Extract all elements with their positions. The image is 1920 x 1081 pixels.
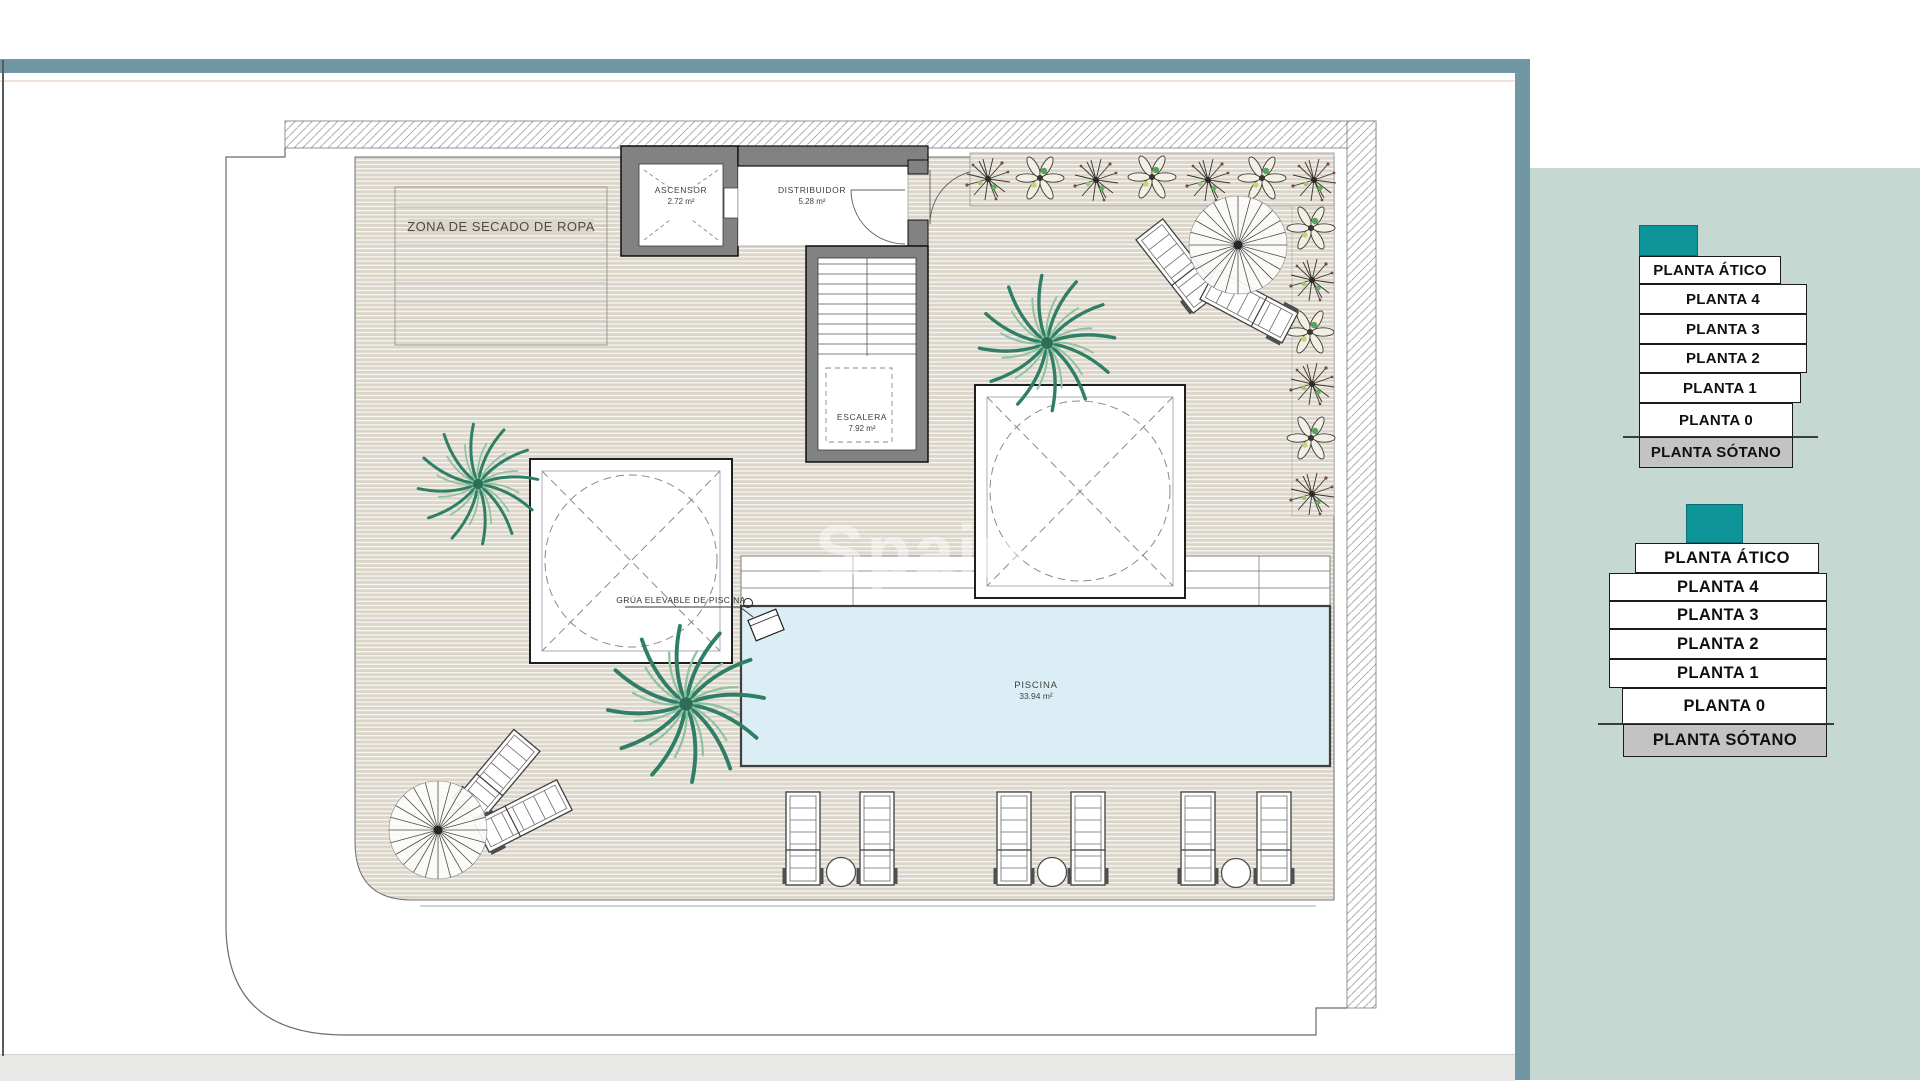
skylight-left	[530, 459, 732, 663]
floor-button-label: PLANTA SÓTANO	[1653, 731, 1797, 750]
ascensor-label: ASCENSOR	[655, 185, 708, 195]
garden-bed-top	[965, 153, 1336, 206]
floor-button-label: PLANTA 3	[1677, 606, 1759, 625]
floor-button-planta-atico[interactable]: PLANTA ÁTICO	[1639, 256, 1781, 284]
stair-room: ESCALERA 7.92 m²	[806, 246, 928, 462]
piscina-label: PISCINA	[1014, 680, 1058, 691]
floor-button-planta-sotano[interactable]: PLANTA SÓTANO	[1639, 437, 1793, 468]
floor-button-label: PLANTA 4	[1686, 291, 1760, 308]
floor-button-label: PLANTA ÁTICO	[1653, 262, 1767, 279]
floor-button-planta-sotano[interactable]: PLANTA SÓTANO	[1623, 724, 1827, 757]
floor-button-planta-3[interactable]: PLANTA 3	[1639, 314, 1807, 344]
distribuidor-area: 5.28 m²	[798, 197, 825, 206]
floor-button-label: PLANTA ÁTICO	[1664, 549, 1790, 568]
pool: PISCINA 33.94 m²	[741, 606, 1330, 766]
floor-button-planta-2[interactable]: PLANTA 2	[1639, 344, 1807, 373]
floor-button-label: PLANTA 0	[1683, 697, 1765, 716]
escalera-label: ESCALERA	[837, 412, 887, 422]
selected-floor-indicator	[1686, 504, 1743, 543]
floor-button-label: PLANTA 2	[1686, 350, 1760, 367]
distribuidor-label: DISTRIBUIDOR	[778, 185, 846, 195]
floor-button-label: PLANTA 0	[1679, 412, 1753, 429]
floor-button-planta-1[interactable]: PLANTA 1	[1639, 373, 1801, 403]
zona-secado-label: ZONA DE SECADO DE ROPA	[407, 219, 595, 234]
floor-button-planta-3[interactable]: PLANTA 3	[1609, 601, 1827, 629]
floor-button-planta-0[interactable]: PLANTA 0	[1622, 688, 1827, 724]
floor-button-planta-2[interactable]: PLANTA 2	[1609, 629, 1827, 659]
floor-button-label: PLANTA 3	[1686, 321, 1760, 338]
selected-floor-indicator	[1639, 225, 1698, 256]
floor-button-planta-1[interactable]: PLANTA 1	[1609, 659, 1827, 688]
floor-button-label: PLANTA 2	[1677, 635, 1759, 654]
floor-button-planta-4[interactable]: PLANTA 4	[1639, 284, 1807, 314]
floor-button-planta-4[interactable]: PLANTA 4	[1609, 573, 1827, 601]
escalera-area: 7.92 m²	[848, 424, 875, 433]
hatch-band-top	[285, 121, 1376, 148]
floor-button-label: PLANTA SÓTANO	[1651, 444, 1781, 461]
floor-plan-drawing: ZONA DE SECADO DE ROPA PISCINA 33.94 m²	[0, 0, 1530, 1080]
floor-button-label: PLANTA 1	[1683, 380, 1757, 397]
hatch-band-right	[1347, 121, 1376, 1008]
watermark: Spain	[815, 510, 1026, 593]
floor-button-label: PLANTA 1	[1677, 664, 1759, 683]
ascensor-area: 2.72 m²	[667, 197, 694, 206]
piscina-area: 33.94 m²	[1019, 691, 1053, 701]
grua-label: GRÚA ELEVABLE DE PISCINA	[616, 595, 745, 605]
floor-button-planta-atico[interactable]: PLANTA ÁTICO	[1635, 543, 1819, 573]
garden-bed-right	[1286, 205, 1335, 516]
floor-button-planta-0[interactable]: PLANTA 0	[1639, 403, 1793, 437]
floor-button-label: PLANTA 4	[1677, 578, 1759, 597]
elevator-room: ASCENSOR 2.72 m²	[621, 146, 738, 256]
